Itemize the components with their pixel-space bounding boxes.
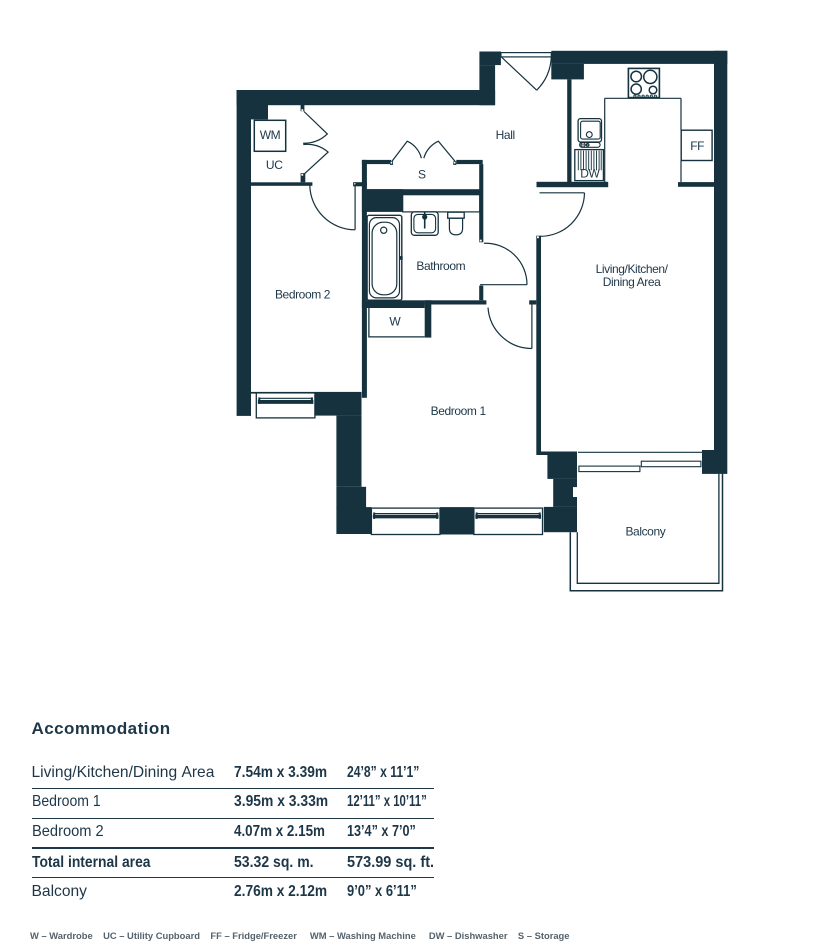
svg-text:FF: FF [690,139,704,153]
svg-text:Bathroom: Bathroom [416,259,465,273]
svg-text:S: S [418,167,426,181]
svg-text:Balcony: Balcony [625,524,665,538]
svg-text:Bedroom 2: Bedroom 2 [275,288,331,302]
svg-text:UC: UC [266,158,283,172]
svg-text:Living/Kitchen/: Living/Kitchen/ [596,262,669,276]
svg-text:DW: DW [580,167,600,181]
svg-text:Hall: Hall [496,128,515,142]
svg-text:W: W [389,315,401,329]
svg-text:Dining Area: Dining Area [603,275,661,289]
svg-text:Bedroom 1: Bedroom 1 [431,404,487,418]
svg-text:WM: WM [260,128,281,142]
